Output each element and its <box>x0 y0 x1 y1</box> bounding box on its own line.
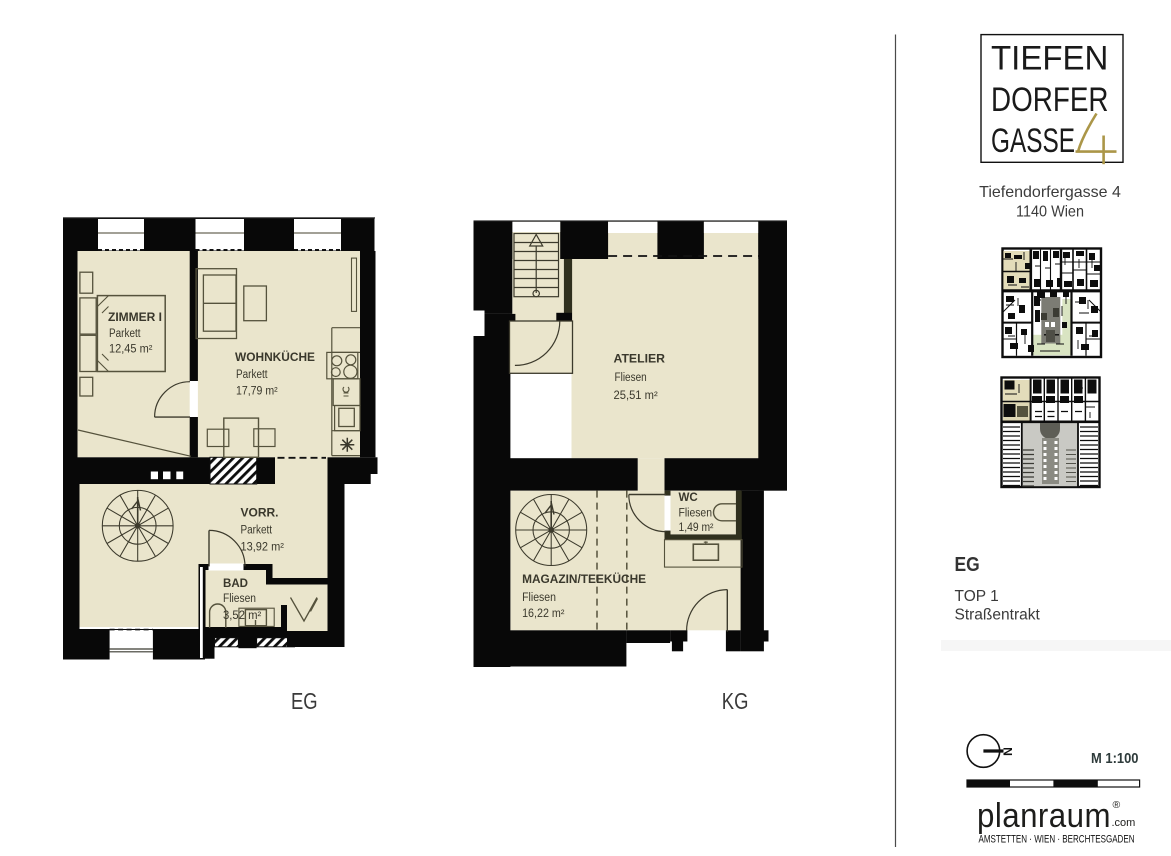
svg-text:Parkett: Parkett <box>236 369 268 381</box>
svg-text:GASSE: GASSE <box>991 122 1075 160</box>
svg-text:Parkett: Parkett <box>241 525 273 537</box>
svg-text:3,52 m²: 3,52 m² <box>223 610 261 622</box>
svg-text:Straßentrakt: Straßentrakt <box>955 607 1041 624</box>
svg-text:Parkett: Parkett <box>109 328 141 340</box>
svg-text:17,79 m²: 17,79 m² <box>236 386 278 398</box>
svg-text:M 1:100: M 1:100 <box>1091 751 1139 767</box>
svg-text:WOHNKÜCHE: WOHNKÜCHE <box>235 351 315 364</box>
svg-text:Fliesen: Fliesen <box>615 372 647 384</box>
svg-text:1,49 m²: 1,49 m² <box>679 522 714 534</box>
svg-text:.com: .com <box>1112 817 1136 829</box>
svg-text:EG: EG <box>955 553 980 576</box>
svg-text:EG: EG <box>291 688 318 714</box>
svg-text:Fliesen: Fliesen <box>522 592 556 604</box>
svg-text:WC: WC <box>679 492 698 504</box>
svg-text:1140 Wien: 1140 Wien <box>1016 204 1084 221</box>
svg-text:®: ® <box>1113 799 1121 811</box>
svg-text:16,22 m²: 16,22 m² <box>522 608 564 620</box>
svg-text:Fliesen: Fliesen <box>679 508 713 520</box>
svg-text:13,92 m²: 13,92 m² <box>241 542 285 554</box>
svg-text:ATELIER: ATELIER <box>614 354 666 366</box>
svg-text:25,51 m²: 25,51 m² <box>614 390 658 402</box>
svg-text:TIEFEN: TIEFEN <box>991 39 1108 77</box>
svg-text:Fliesen: Fliesen <box>223 593 256 605</box>
svg-text:DORFER: DORFER <box>991 81 1109 119</box>
svg-text:Tiefendorfergasse 4: Tiefendorfergasse 4 <box>979 184 1121 201</box>
svg-text:MAGAZIN/TEEKÜCHE: MAGAZIN/TEEKÜCHE <box>522 573 646 586</box>
svg-text:AMSTETTEN · WIEN · BERCHTESGAD: AMSTETTEN · WIEN · BERCHTESGADEN <box>979 834 1135 846</box>
svg-text:N: N <box>1001 747 1015 756</box>
svg-text:VORR.: VORR. <box>241 508 279 520</box>
svg-text:12,45 m²: 12,45 m² <box>109 344 153 356</box>
svg-text:BAD: BAD <box>223 578 248 590</box>
svg-text:planraum: planraum <box>977 797 1111 835</box>
svg-text:TOP 1: TOP 1 <box>955 588 999 605</box>
svg-text:ZIMMER I: ZIMMER I <box>108 312 162 324</box>
svg-text:KG: KG <box>722 688 749 714</box>
